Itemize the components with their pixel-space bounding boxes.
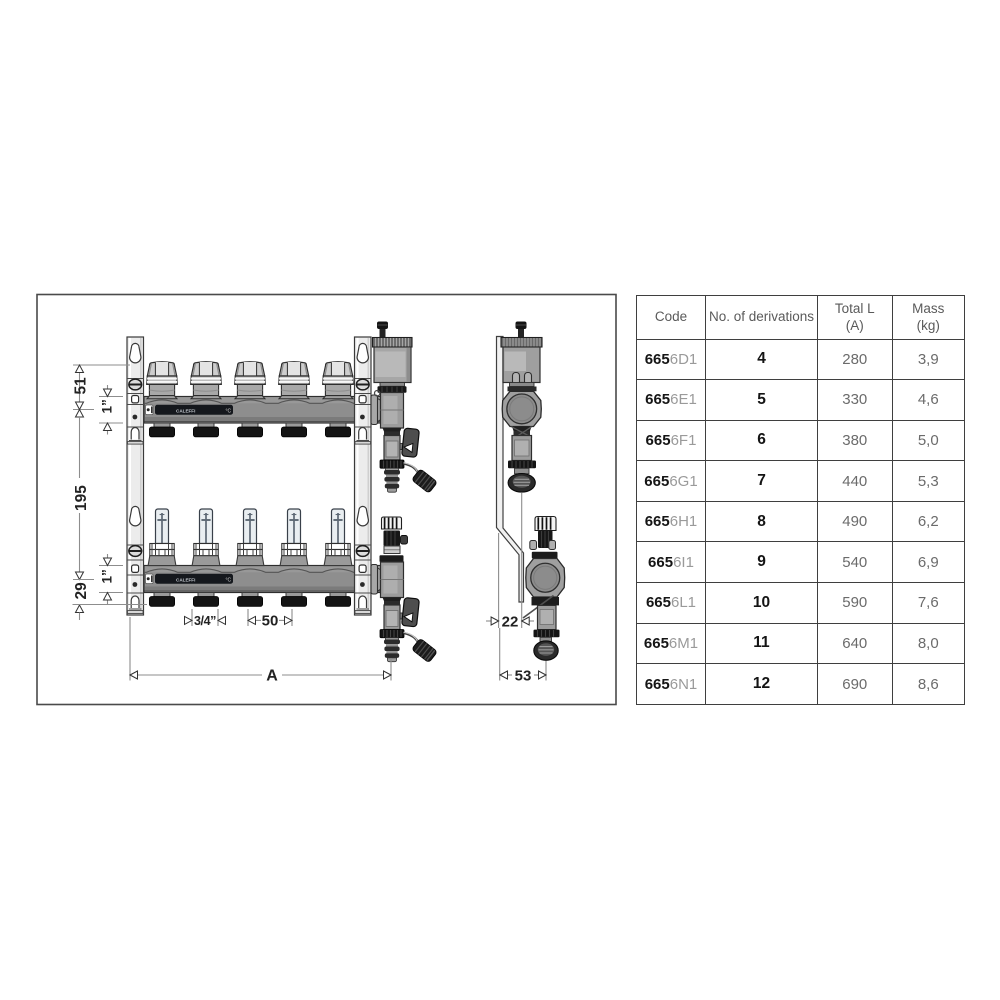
- svg-text:1”: 1”: [100, 399, 115, 413]
- svg-text:1”: 1”: [100, 569, 115, 583]
- svg-text:°C: °C: [226, 578, 232, 584]
- svg-text:3/4”: 3/4”: [194, 614, 216, 628]
- svg-text:50: 50: [262, 613, 279, 630]
- svg-text:53: 53: [515, 668, 532, 685]
- svg-text:CALEFFI: CALEFFI: [176, 577, 195, 582]
- svg-text:CALEFFI: CALEFFI: [176, 408, 195, 413]
- svg-text:°C: °C: [226, 409, 232, 415]
- svg-text:22: 22: [502, 614, 519, 631]
- svg-text:29: 29: [73, 582, 90, 600]
- svg-text:195: 195: [73, 485, 90, 511]
- svg-text:A: A: [266, 668, 278, 685]
- svg-text:51: 51: [73, 377, 90, 395]
